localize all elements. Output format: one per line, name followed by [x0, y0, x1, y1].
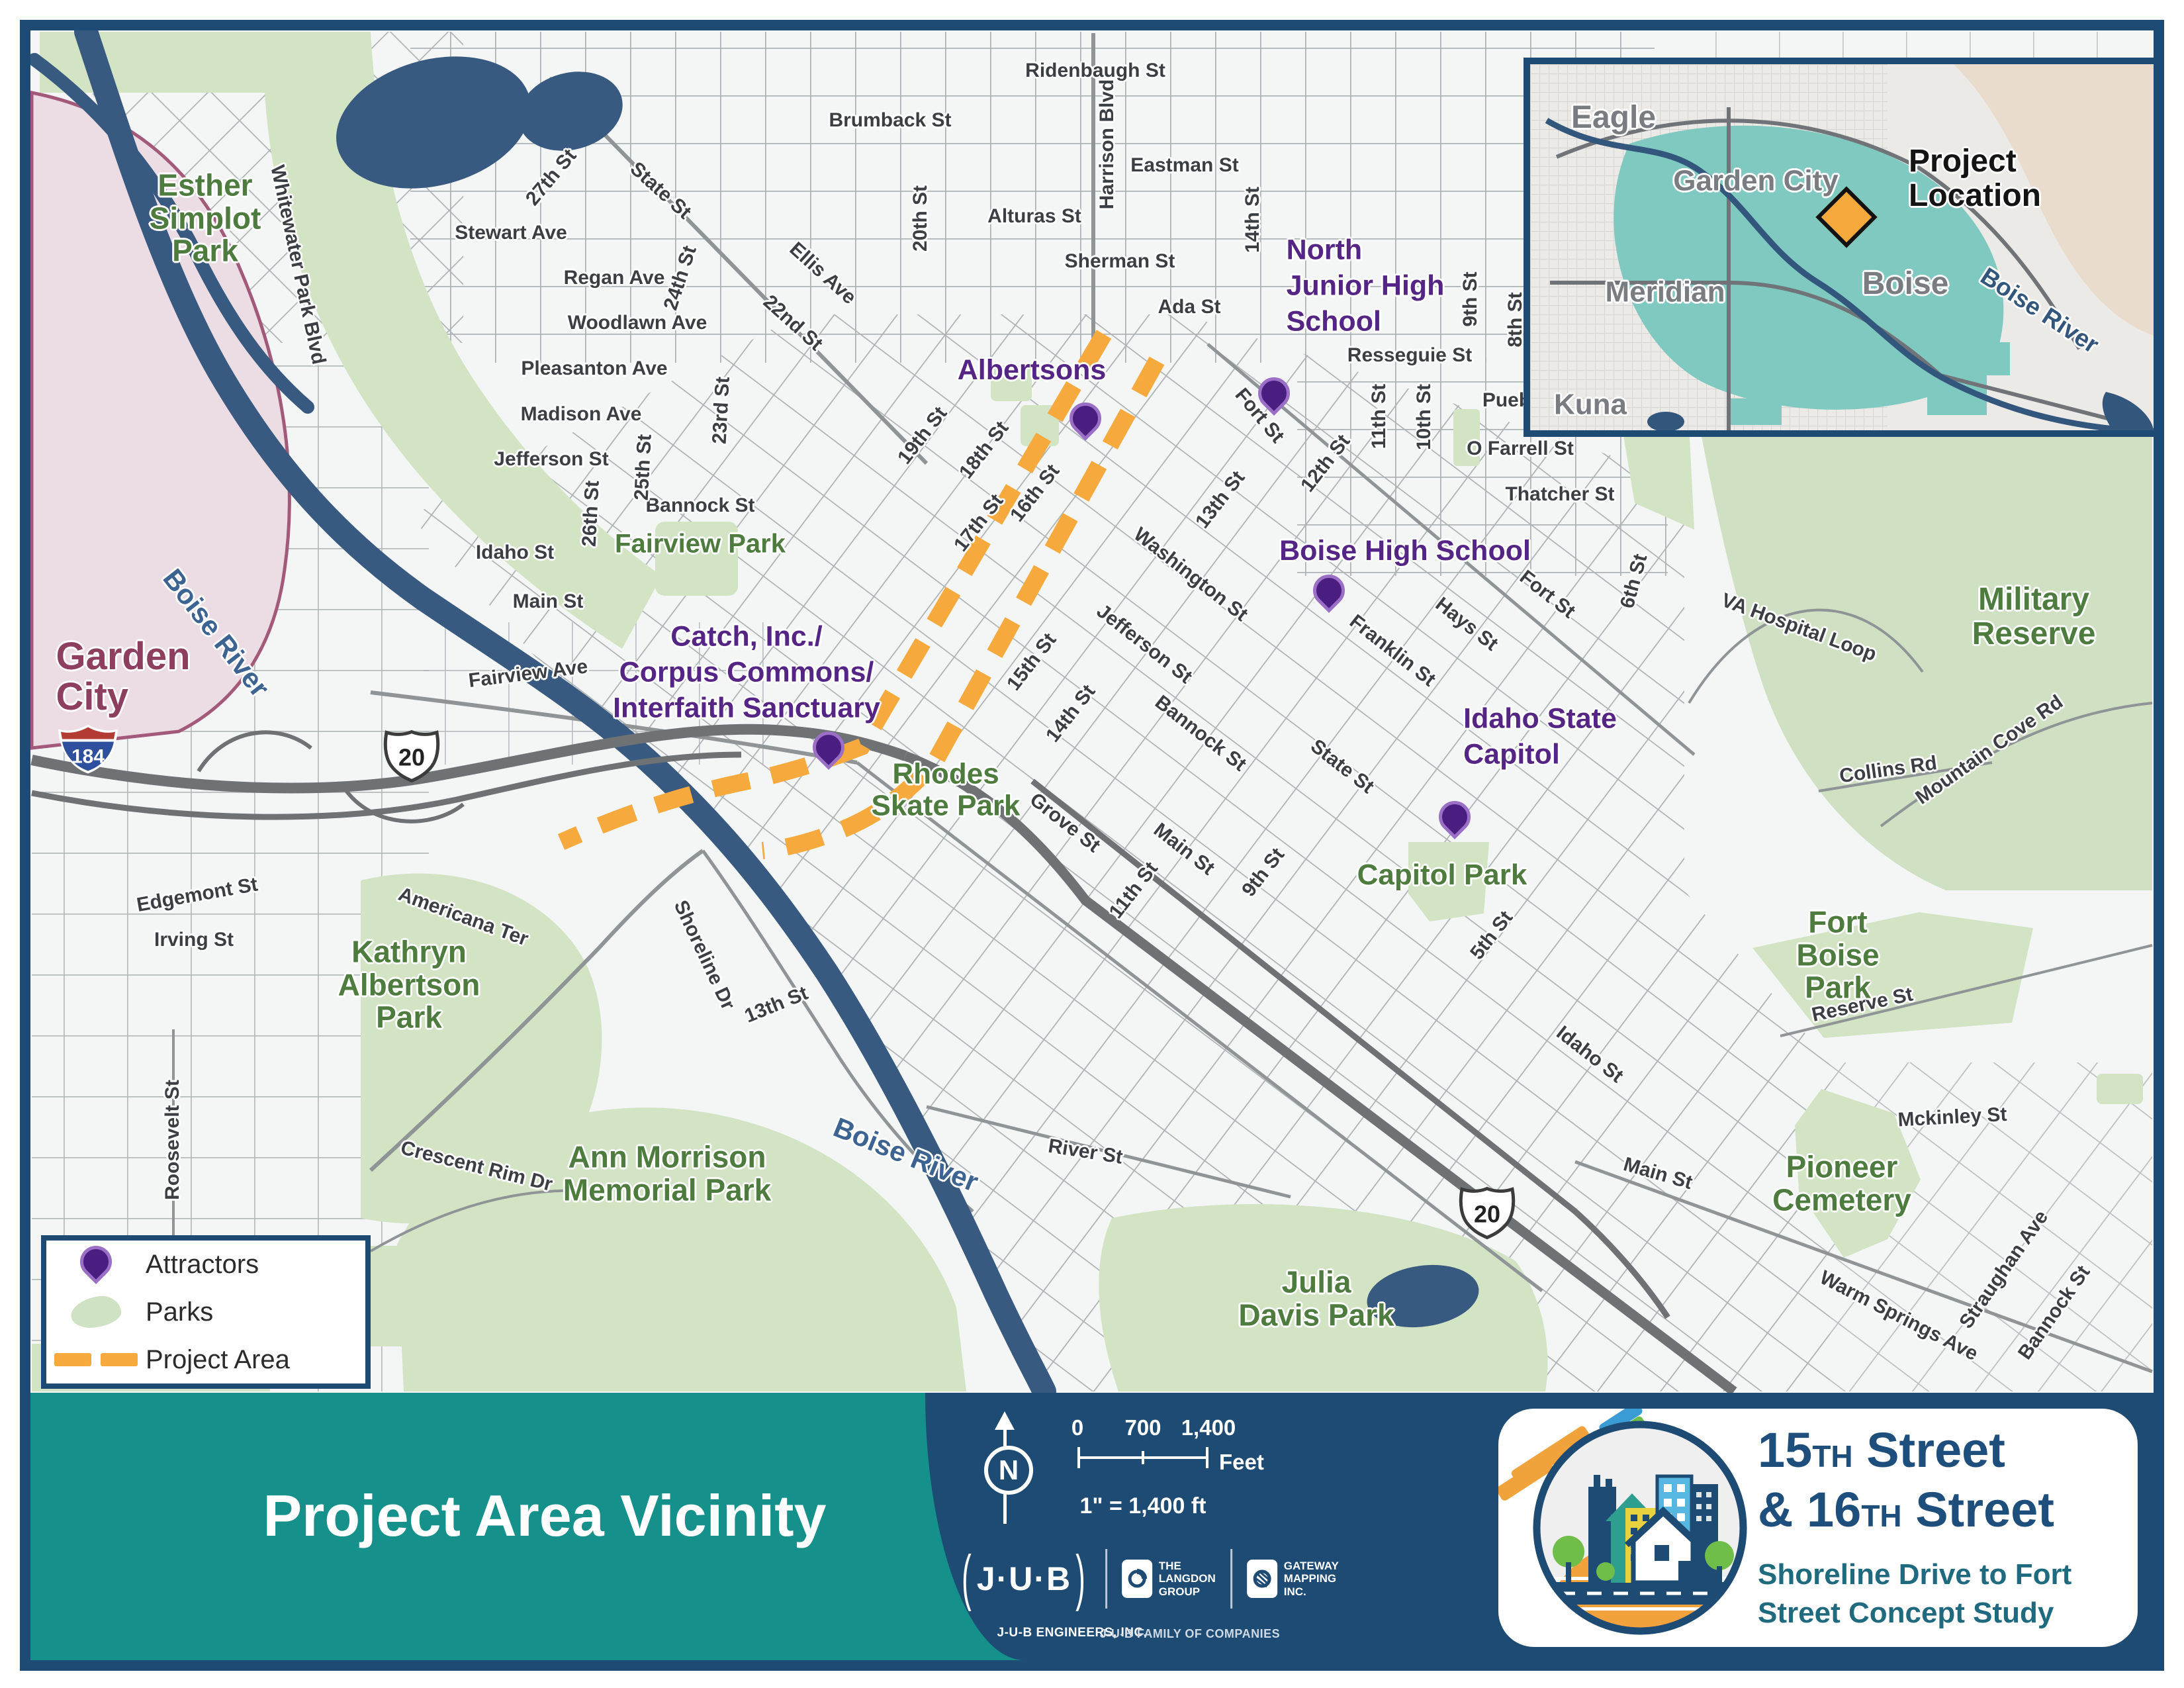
jefferson-st-label: Jefferson St: [494, 448, 608, 471]
project-logo-card: 15TH Street & 16TH Street Shoreline Driv…: [1498, 1409, 2138, 1647]
kuna-label: Kuna: [1554, 388, 1627, 420]
19th-st-label: 19th St: [893, 402, 952, 469]
jefferson-st-label: Jefferson St: [1092, 600, 1196, 688]
main-st-label: Main St: [1621, 1153, 1695, 1194]
bannock-st-label: Bannock St: [2014, 1262, 2095, 1364]
16th-st-label: 16th St: [1006, 460, 1064, 526]
18th-st-label: 18th St: [955, 417, 1013, 483]
sherman-st-label: Sherman St: [1065, 250, 1175, 273]
fairview-ave-label: Fairview Ave: [467, 655, 589, 692]
company-logos: ( J·U·B ) THE LANGDON GROUP GATEWAY MAPP…: [958, 1549, 1339, 1609]
north-arrow: N: [965, 1411, 1044, 1524]
project-label: ProjectLocation: [1909, 144, 2041, 213]
9th-st-label: 9th St: [1459, 271, 1482, 326]
legend-item-parks: Parks: [46, 1288, 365, 1336]
14th-st-label: 14th St: [1242, 187, 1264, 253]
pleasanton-ave-label: Pleasanton Ave: [521, 357, 667, 380]
shoreline-dr-label: Shoreline Dr: [669, 897, 739, 1013]
langdon-label: THE LANGDON GROUP: [1159, 1560, 1216, 1597]
north-label: NorthJunior HighSchool: [1287, 232, 1445, 339]
23rd-st-label: 23rd St: [709, 376, 735, 444]
va-hospital-loop-label: VA Hospital Loop: [1718, 589, 1879, 666]
inset-map[interactable]: EagleGarden CityBoiseMeridianKunaBoise R…: [1524, 58, 2154, 437]
legend-item-project-area: Project Area: [46, 1336, 365, 1383]
ann-morrison-label: Ann MorrisonMemorial Park: [563, 1141, 771, 1206]
capitol-park-label: Capitol Park: [1357, 859, 1527, 891]
legend-label-project-area: Project Area: [146, 1345, 290, 1375]
julia-label: JuliaDavis Park: [1238, 1266, 1394, 1331]
jub-paren-right: ): [1071, 1544, 1091, 1614]
edgemont-st-label: Edgemont St: [135, 873, 259, 916]
map-title: Project Area Vicinity: [263, 1482, 826, 1550]
15th-st-label: 15th St: [1003, 629, 1061, 695]
legend-symbol-park: [46, 1288, 146, 1336]
14th-st-label: 14th St: [1042, 680, 1100, 747]
project-name-line2: & 16TH Street: [1758, 1481, 2054, 1538]
scale-mid: 700: [1124, 1415, 1161, 1440]
jub-wordmark: J·U·B: [977, 1560, 1071, 1598]
pioneer-label: PioneerCemetery: [1772, 1150, 1911, 1216]
20th-st-label: 20th St: [909, 185, 932, 252]
legend-project-area-icon: [54, 1353, 138, 1366]
24th-st-label: 24th St: [660, 243, 702, 313]
stewart-ave-label: Stewart Ave: [455, 222, 567, 244]
albertsons-label: Albertsons: [958, 353, 1107, 389]
legend-symbol-pin: [46, 1241, 146, 1288]
logo-divider: [1105, 1549, 1107, 1609]
boise-river-label: Boise River: [829, 1111, 983, 1197]
10th-st-label: 10th St: [1413, 384, 1435, 450]
meridian-label: Meridian: [1606, 275, 1725, 308]
kathryn-label: KathrynAlbertsonPark: [338, 935, 480, 1034]
scale-ratio: 1" = 1,400 ft: [1080, 1493, 1206, 1519]
scale-bar: 0 700 1,400 Feet 1" = 1,400 ft: [1077, 1415, 1296, 1471]
fairview-park-label: Fairview Park: [615, 530, 786, 558]
legend-label-attractors: Attractors: [146, 1250, 259, 1280]
13th-st-label: 13th St: [741, 982, 811, 1028]
13th-st-label: 13th St: [1191, 467, 1250, 533]
city-logo-circle: [1527, 1415, 1752, 1640]
resseguie-st-label: Resseguie St: [1347, 344, 1472, 367]
27th-st-label: 27th St: [522, 145, 581, 210]
22nd-st-label: 22nd St: [758, 291, 827, 355]
scale-end: 1,400: [1181, 1415, 1236, 1440]
boise-label: Boise: [1862, 266, 1949, 302]
gateway-logo: GATEWAY MAPPING INC.: [1247, 1560, 1339, 1598]
washington-st-label: Washington St: [1129, 523, 1251, 626]
brumback-st-label: Brumback St: [829, 109, 951, 132]
inset-labels-layer: EagleGarden CityBoiseMeridianKunaBoise R…: [1530, 64, 2154, 430]
garden-label: GardenCity: [56, 637, 190, 718]
rhodes-label: RhodesSkate Park: [871, 758, 1020, 821]
alturas-st-label: Alturas St: [987, 205, 1081, 228]
roosevelt-st-label: Roosevelt St: [161, 1080, 184, 1200]
fort-label: FortBoisePark: [1796, 906, 1879, 1004]
boise-high-school-label: Boise High School: [1279, 534, 1531, 569]
25th-st-label: 25th St: [631, 434, 657, 501]
project-name-line1: 15TH Street: [1758, 1422, 2005, 1478]
bannock-st-label: Bannock St: [1151, 691, 1251, 776]
eagle-label: Eagle: [1571, 100, 1656, 136]
gateway-label: GATEWAY MAPPING INC.: [1284, 1560, 1339, 1597]
mountain-cove-rd-label: Mountain Cove Rd: [1912, 691, 2068, 810]
main-st-label: Main St: [513, 590, 584, 613]
eastman-st-label: Eastman St: [1130, 154, 1238, 177]
ellis-ave-label: Ellis Ave: [785, 238, 860, 308]
scale-start: 0: [1071, 1415, 1083, 1440]
boise-river-label: Boise River: [1976, 262, 2103, 359]
fort-st-label: Fort St: [1230, 384, 1289, 447]
jub-logo: ( J·U·B ): [958, 1560, 1091, 1598]
whitewater-park-blvd-label: Whitewater Park Blvd: [266, 163, 330, 366]
river-st-label: River St: [1046, 1135, 1124, 1169]
logo-divider: [1230, 1549, 1232, 1609]
regan-ave-label: Regan Ave: [564, 267, 665, 289]
mckinley-st-label: Mckinley St: [1897, 1103, 2008, 1131]
26th-st-label: 26th St: [578, 480, 604, 547]
legend-item-attractors: Attractors: [46, 1241, 365, 1288]
idaho-state-label: Idaho StateCapitol: [1463, 701, 1617, 773]
footer-bar: Project Area Vicinity N 0 700 1,400 Feet…: [30, 1393, 2154, 1660]
11th-st-label: 11th St: [1368, 384, 1390, 449]
6th-st-label: 6th St: [1616, 551, 1652, 610]
crescent-rim-dr-label: Crescent Rim Dr: [398, 1137, 555, 1196]
project-subtitle-line1: Shoreline Drive to Fort: [1758, 1558, 2071, 1591]
fort-st-label: Fort St: [1516, 566, 1580, 623]
9th-st-label: 9th St: [1238, 844, 1289, 901]
jub-paren-left: (: [958, 1544, 977, 1614]
ridenbaugh-st-label: Ridenbaugh St: [1025, 60, 1165, 82]
madison-ave-label: Madison Ave: [521, 403, 642, 426]
legend-pin-icon: [73, 1239, 118, 1284]
langdon-logo: THE LANGDON GROUP: [1122, 1560, 1216, 1598]
scale-unit: Feet: [1219, 1450, 1264, 1475]
legend-label-parks: Parks: [146, 1297, 213, 1327]
langdon-icon: [1122, 1560, 1152, 1598]
irving-st-label: Irving St: [154, 929, 234, 951]
jub-family-caption: J-U-B FAMILY OF COMPANIES: [1100, 1627, 1280, 1641]
legend-park-icon: [69, 1293, 123, 1331]
5th-st-label: 5th St: [1466, 907, 1518, 964]
thatcher-st-label: Thatcher St: [1505, 483, 1614, 506]
franklin-st-label: Franklin St: [1345, 610, 1440, 691]
11th-st-label: 11th St: [1105, 858, 1162, 923]
north-arrow-head: [995, 1411, 1015, 1430]
17th-st-label: 17th St: [950, 490, 1008, 556]
state-st-label: State St: [625, 158, 695, 224]
12th-st-label: 12th St: [1297, 430, 1355, 496]
north-arrow-circle: N: [984, 1446, 1033, 1495]
idaho-st-label: Idaho St: [1552, 1021, 1627, 1087]
ada-st-label: Ada St: [1158, 296, 1220, 318]
project-subtitle-line2: Street Concept Study: [1758, 1597, 2054, 1630]
state-st-label: State St: [1306, 735, 1379, 798]
military-label: MilitaryReserve: [1972, 583, 2096, 651]
legend: AttractorsParksProject Area: [41, 1235, 371, 1389]
straughan-ave-label: Straughan Ave: [1955, 1207, 2053, 1333]
woodlawn-ave-label: Woodlawn Ave: [568, 312, 707, 334]
legend-symbol-dash: [46, 1336, 146, 1383]
harrison-blvd-label: Harrison Blvd: [1096, 79, 1118, 210]
garden-city-label: Garden City: [1673, 164, 1838, 197]
grove-st-label: Grove St: [1025, 788, 1104, 857]
bannock-st-label: Bannock St: [645, 494, 754, 517]
north-label: N: [999, 1454, 1019, 1486]
map-sheet: 1842020 Ridenbaugh StBrumback StEastman …: [0, 0, 2184, 1688]
idaho-st-label: Idaho St: [476, 541, 554, 564]
catch-inc-label: Catch, Inc./Corpus Commons/Interfaith Sa…: [613, 619, 880, 726]
hays-st-label: Hays St: [1431, 593, 1502, 655]
esther-label: EstherSimplotPark: [150, 169, 261, 267]
main-map[interactable]: 1842020 Ridenbaugh StBrumback StEastman …: [30, 30, 2154, 1393]
warm-springs-ave-label: Warm Springs Ave: [1816, 1266, 1981, 1366]
o-farrell-st-label: O Farrell St: [1467, 438, 1574, 460]
gateway-icon: [1247, 1560, 1277, 1598]
